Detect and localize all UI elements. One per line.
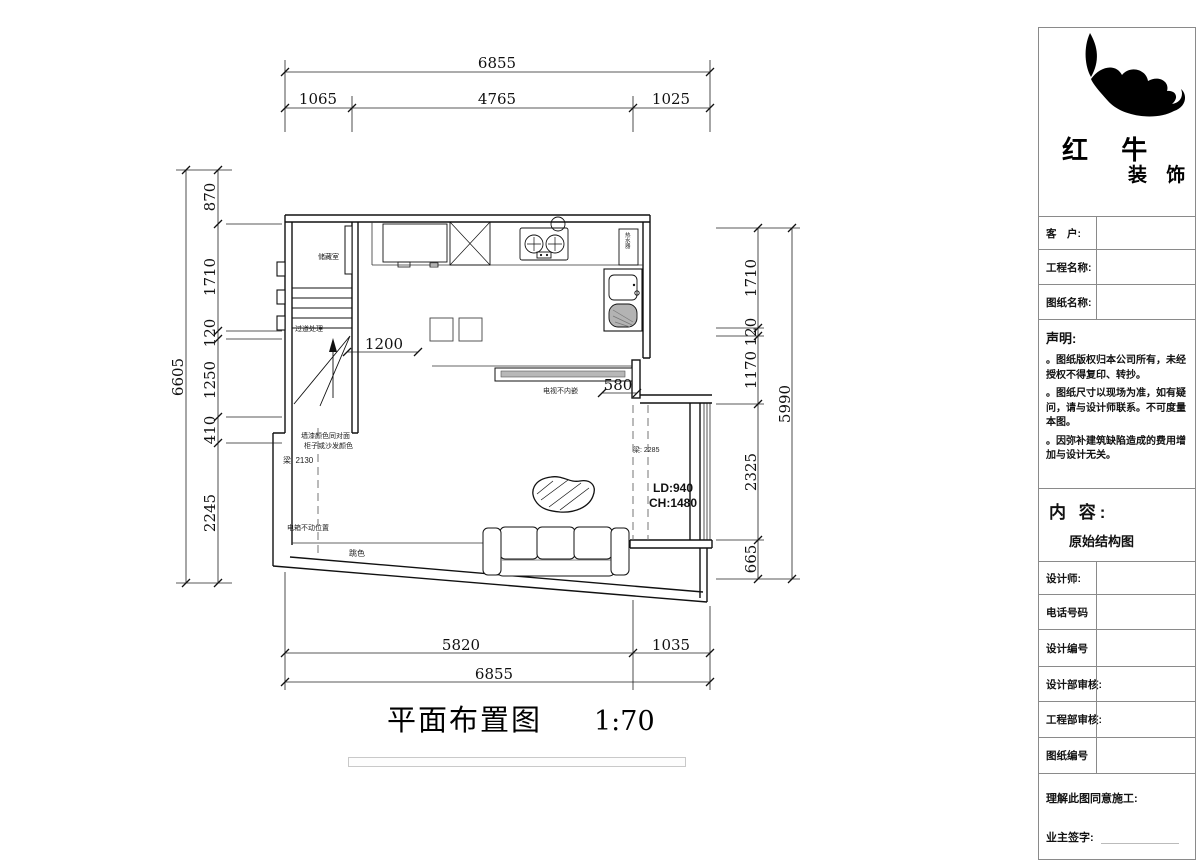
field-designer: 设计师: [1039,561,1195,594]
dim-right-4: 2325 [742,453,760,491]
field-project-name: 工程名称: [1039,249,1195,284]
label-water-heater: 热水器 [623,232,629,249]
label-tv-note: 电视不内嵌 [543,388,578,397]
label-beam-right: 梁: 2285 [633,447,659,456]
dim-left-1: 870 [201,183,219,212]
field-design-number-value [1096,630,1195,666]
dim-bottom-1: 5820 [442,636,480,654]
field-eng-dept-review-label: 工程部审核: [1039,702,1096,737]
staircase [292,288,352,406]
field-eng-dept-review: 工程部审核: [1039,701,1195,737]
dimension-ticks [182,68,796,686]
fridge [383,224,447,262]
label-beam-left: 梁: 2130 [283,456,313,466]
plan-scale: 1:70 [594,706,655,738]
content-label: 内 容: [1049,498,1195,523]
gas-stove [520,228,568,260]
dim-left-total: 6605 [169,358,187,396]
owner-signature-label: 业主签字: [1046,829,1094,845]
field-design-dept-review-label: 设计部审核: [1039,667,1096,701]
field-design-dept-review-value [1096,667,1195,701]
label-wall-color-note-2: 柜子或沙发颜色 [304,443,353,452]
dim-bottom-total: 6855 [475,665,513,683]
dim-left-3: 120 [201,319,219,348]
label-window-ld: LD:940 [653,481,693,495]
gas-point [551,217,565,231]
label-electric-box-note: 电箱不动位置 [287,525,329,534]
dim-right-1: 1710 [742,259,760,297]
left-wall-pilasters [277,262,285,330]
field-phone-label: 电话号码 [1039,595,1096,629]
label-wall-color-note-1: 墙漆颜色同对面 [301,433,350,442]
dim-top-3: 1025 [652,90,690,108]
statement-item: 。图纸版权归本公司所有，未经授权不得复印、转抄。 [1046,354,1189,383]
field-drawing-number-value [1096,738,1195,773]
kitchen-fixtures [383,217,642,331]
content-section: 内 容: 原始结构图 [1039,488,1195,561]
kitchen-sink [604,269,642,331]
dim-right-total: 5990 [776,385,794,423]
dim-inner-580: 580 [604,376,633,394]
field-drawing-name: 图纸名称: [1039,284,1195,319]
dim-left-5: 410 [201,416,219,445]
dim-right-3: 1170 [742,351,760,389]
dim-bottom-2: 1035 [652,636,690,654]
sofa [483,527,629,576]
field-design-number: 设计编号 [1039,629,1195,666]
field-customer: 客 户: [1039,216,1195,249]
dim-left-2: 1710 [201,258,219,296]
dim-inner-1200: 1200 [365,335,403,353]
window-glass-lines [704,403,710,540]
title-block: 客 户: 工程名称: 图纸名称: 声明: 。图纸版权归本公司所有，未经授权不得复… [1038,27,1196,860]
field-designer-label: 设计师: [1039,562,1096,594]
drawing-sheet: 6855 1065 4765 1025 6605 870 1710 120 12… [0,0,1200,865]
field-customer-label: 客 户: [1039,217,1096,249]
field-project-name-value [1096,250,1195,284]
content-value: 原始结构图 [1069,531,1195,550]
statement-title: 声明: [1046,328,1195,347]
dim-top-1: 1065 [299,90,337,108]
statement-item: 。图纸尺寸以现场为准，如有疑问，请与设计师联系。不可度量本图。 [1046,387,1189,431]
field-eng-dept-review-value [1096,702,1195,737]
dim-top-total: 6855 [478,54,516,72]
signature-section: 理解此图同意施工: 业主签字: [1039,773,1195,859]
label-corridor-note: 过道处理 [295,326,323,335]
flue-shaft [450,222,490,265]
field-phone: 电话号码 [1039,594,1195,629]
title-underline-bar [348,757,686,767]
field-design-dept-review: 设计部审核: [1039,666,1195,701]
label-accent-color: 跳色 [349,549,365,559]
field-customer-value [1096,217,1195,249]
dim-left-6: 2245 [201,494,219,532]
storage-door-leaf [345,226,352,274]
construction-agreement-text: 理解此图同意施工: [1046,790,1138,806]
field-drawing-number: 图纸编号 [1039,737,1195,773]
field-drawing-name-label: 图纸名称: [1039,285,1096,319]
dim-right-5: 665 [742,545,760,574]
stair-direction-arrow [329,338,337,352]
plan-title: 平面布置图 [387,704,542,739]
field-drawing-number-label: 图纸编号 [1039,738,1096,773]
dim-top-2: 4765 [478,90,516,108]
statement-section: 声明: 。图纸版权归本公司所有，未经授权不得复印、转抄。 。图纸尺寸以现场为准，… [1039,319,1195,488]
owner-signature-line [1101,843,1179,844]
dim-left-4: 1250 [201,361,219,399]
dim-right-2: 120 [742,318,760,347]
field-project-name-label: 工程名称: [1039,250,1096,284]
statement-item: 。因弥补建筑缺陷造成的费用增加与设计无关。 [1046,435,1189,464]
field-designer-value [1096,562,1195,594]
field-design-number-label: 设计编号 [1039,630,1096,666]
field-drawing-name-value [1096,285,1195,319]
label-storage-room: 储藏室 [318,254,339,263]
dining-table [430,318,482,341]
field-phone-value [1096,595,1195,629]
coffee-table [533,477,594,512]
label-window-ch: CH:1480 [649,496,697,510]
